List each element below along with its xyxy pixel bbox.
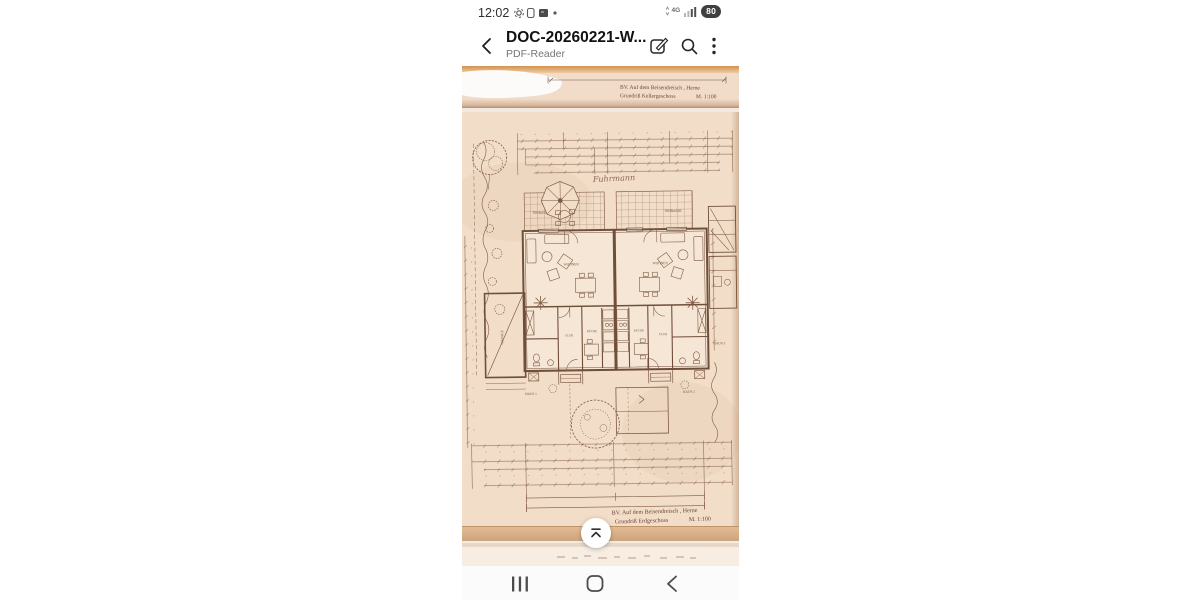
pdf-page-floorplan[interactable]: Fuhrmann xyxy=(462,112,739,541)
terrace-right-label: TERRASSE xyxy=(664,209,681,213)
caption-scale: M. 1:100 xyxy=(689,516,711,523)
photo-edge-right xyxy=(731,112,739,541)
status-bar: 12:02 4G xyxy=(462,0,739,26)
hall-left-label: FLUR xyxy=(565,333,573,337)
search-icon[interactable] xyxy=(678,35,700,57)
screen-record-icon xyxy=(515,9,524,18)
back-icon[interactable] xyxy=(478,36,494,56)
chevron-up-icon xyxy=(588,525,604,541)
status-right-icons: 4G 80 xyxy=(665,5,721,18)
dimension-chains-top xyxy=(517,130,733,175)
notification-dot xyxy=(553,11,556,14)
house2-label: HAUS 2 xyxy=(683,390,695,394)
prev-caption-line1: BV. Auf dem Beisendreisch , Herne xyxy=(620,84,700,92)
screenshot-icon xyxy=(539,9,548,17)
garage-label: GARAGE xyxy=(500,330,504,344)
signal-strength-icon xyxy=(684,6,697,17)
android-nav-bar xyxy=(462,565,739,600)
document-title: DOC-20260221-W... xyxy=(506,29,656,47)
more-menu-icon[interactable] xyxy=(703,35,725,57)
home-icon[interactable] xyxy=(582,573,608,595)
network-4g-icon: 4G xyxy=(665,6,680,16)
recents-icon[interactable] xyxy=(507,573,533,595)
building-walls xyxy=(523,227,709,371)
living-left-label: WOHNEN xyxy=(564,262,580,266)
battery-pill: 80 xyxy=(701,5,721,18)
house3-label: HAUS 3 xyxy=(713,341,725,345)
phone-screen: 12:02 4G xyxy=(462,0,739,600)
living-right-label: WOHNEN xyxy=(653,261,669,265)
clock: 12:02 xyxy=(478,6,509,20)
app-name-label: PDF-Reader xyxy=(506,48,565,60)
sim-icon xyxy=(528,9,535,18)
prev-caption-line2: Grundriß Kellergeschoss xyxy=(620,92,676,100)
pdf-page-previous[interactable]: BV. Auf dem Beisendreisch , Herne Grundr… xyxy=(462,66,739,108)
house1-label: HAUS 1 xyxy=(525,392,537,396)
faint-drawing-marks xyxy=(557,556,696,558)
edit-icon[interactable] xyxy=(648,35,670,57)
hall-right-label: FLUR xyxy=(659,332,667,336)
scroll-to-top-button[interactable] xyxy=(581,518,611,548)
dimension-chain-right xyxy=(711,228,721,350)
kitchen-left-label: KÜCHE xyxy=(587,328,598,333)
kitchen-right-label: KÜCHE xyxy=(634,327,645,332)
app-header: DOC-20260221-W... PDF-Reader xyxy=(462,26,739,66)
status-left-icons xyxy=(514,7,562,19)
nav-back-icon[interactable] xyxy=(660,573,686,595)
